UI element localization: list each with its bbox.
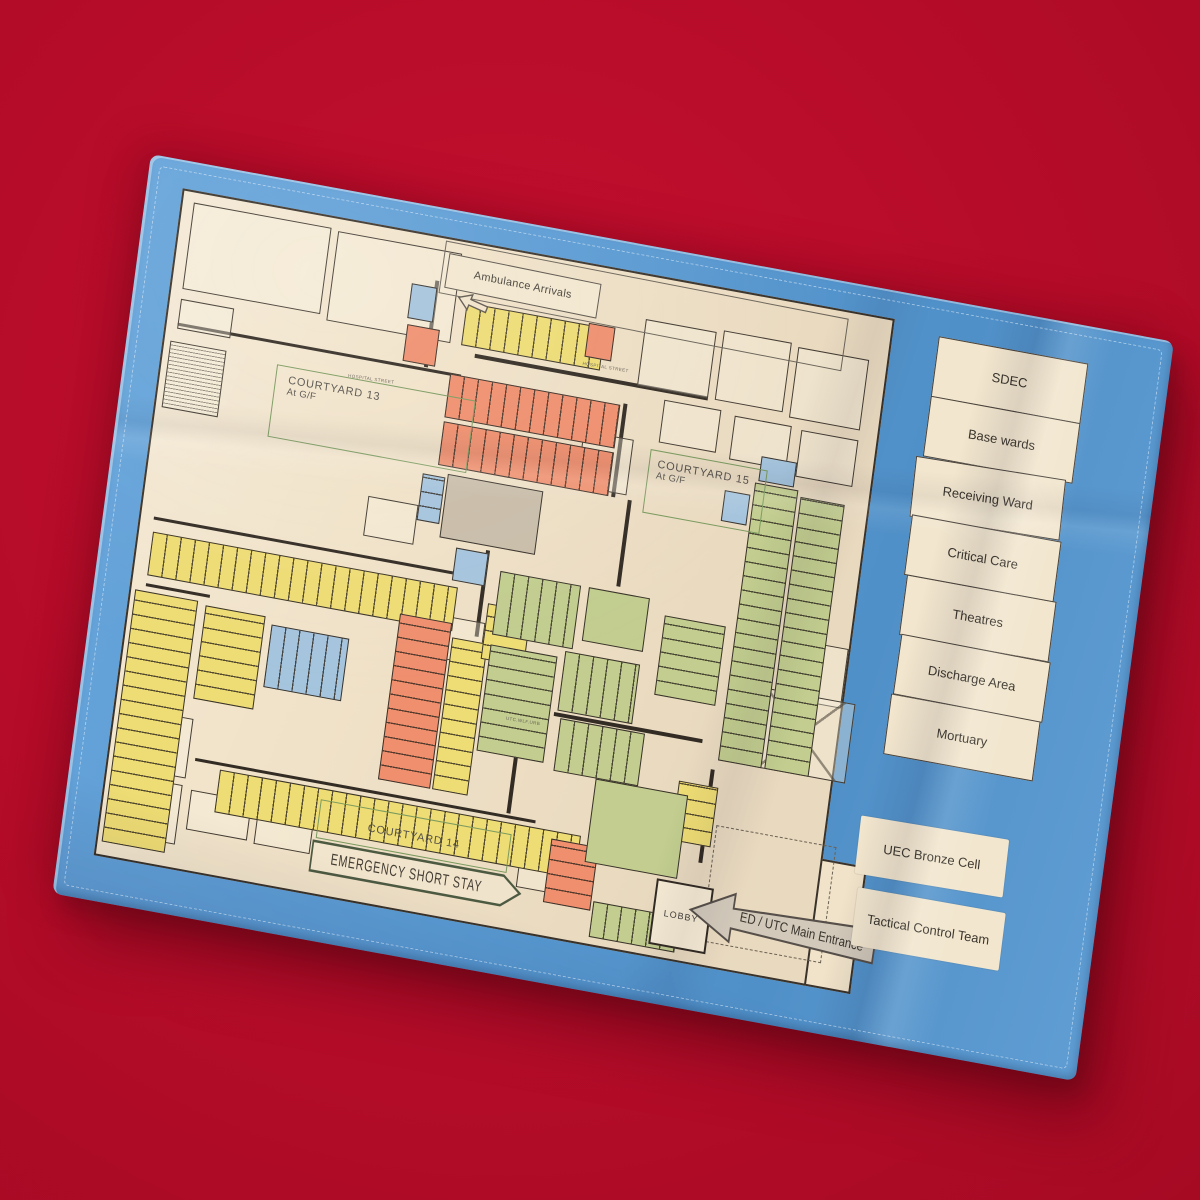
street-label: HOSPITAL STREET	[582, 361, 629, 374]
room-block-blue	[452, 547, 489, 586]
room-block-orange	[403, 324, 441, 367]
room-block-orange	[585, 323, 616, 361]
room-block-green	[476, 644, 557, 762]
room-block-green	[581, 587, 649, 651]
outline-room	[796, 430, 859, 487]
room-block-green	[558, 651, 640, 724]
room-block-gray	[439, 474, 543, 555]
outline-room	[177, 299, 234, 339]
uec-bronze-cell-label: UEC Bronze Cell	[883, 841, 982, 872]
room-block-blue	[416, 473, 445, 524]
room-block-blue	[263, 624, 349, 701]
courtyard-13: COURTYARD 13 At G/F	[268, 364, 476, 473]
wall-segment	[616, 500, 631, 587]
outline-room	[363, 496, 418, 545]
room-block-yellow	[193, 605, 266, 709]
callout-uec-bronze-cell: UEC Bronze Cell	[855, 815, 1010, 897]
room-block-green	[654, 615, 726, 706]
room-block-blue	[407, 283, 437, 322]
courtyard-14-label: COURTYARD 14	[367, 822, 461, 851]
legend-column: SDECBase wardsReceiving WardCritical Car…	[883, 337, 1088, 781]
hospital-map-towel: HOSPITAL STREETHOSPITAL STREETUTC.WLF.UR…	[52, 154, 1174, 1081]
outline-room	[182, 203, 332, 315]
floor-plan-paper: HOSPITAL STREETHOSPITAL STREETUTC.WLF.UR…	[94, 188, 895, 986]
outline-room	[659, 400, 721, 453]
tactical-control-team-label: Tactical Control Team	[866, 911, 990, 947]
photo-background: HOSPITAL STREETHOSPITAL STREETUTC.WLF.UR…	[0, 0, 1200, 1200]
stairwell-room	[161, 341, 226, 418]
room-block-green	[585, 779, 688, 879]
